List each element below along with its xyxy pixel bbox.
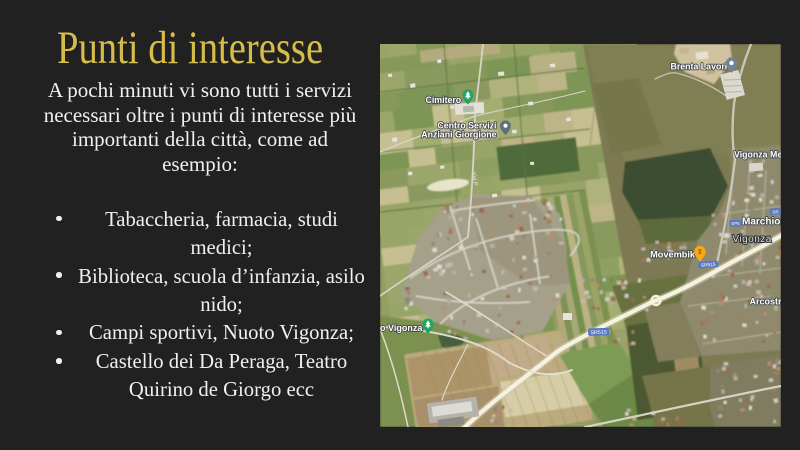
svg-text:Anziani Giorgione: Anziani Giorgione: [421, 130, 496, 140]
svg-text:Cimitero: Cimitero: [426, 95, 462, 105]
svg-text:Brenta Lavori: Brenta Lavori: [671, 61, 728, 71]
svg-text:Marchiorο: Marchiorο: [742, 216, 781, 227]
svg-text:Movembik: Movembik: [650, 250, 696, 260]
svg-text:Vigonza Me: Vigonza Me: [734, 149, 781, 159]
svg-text:o Vigonza: o Vigonza: [380, 323, 423, 333]
svg-text:SR515: SR515: [590, 330, 607, 337]
svg-text:Arcostru: Arcostru: [750, 297, 782, 307]
svg-text:SR515: SR515: [701, 262, 716, 269]
svg-text:Vigonza: Vigonza: [732, 234, 771, 245]
svg-text:SR: SR: [772, 209, 779, 214]
svg-text:SP5: SP5: [731, 221, 740, 226]
